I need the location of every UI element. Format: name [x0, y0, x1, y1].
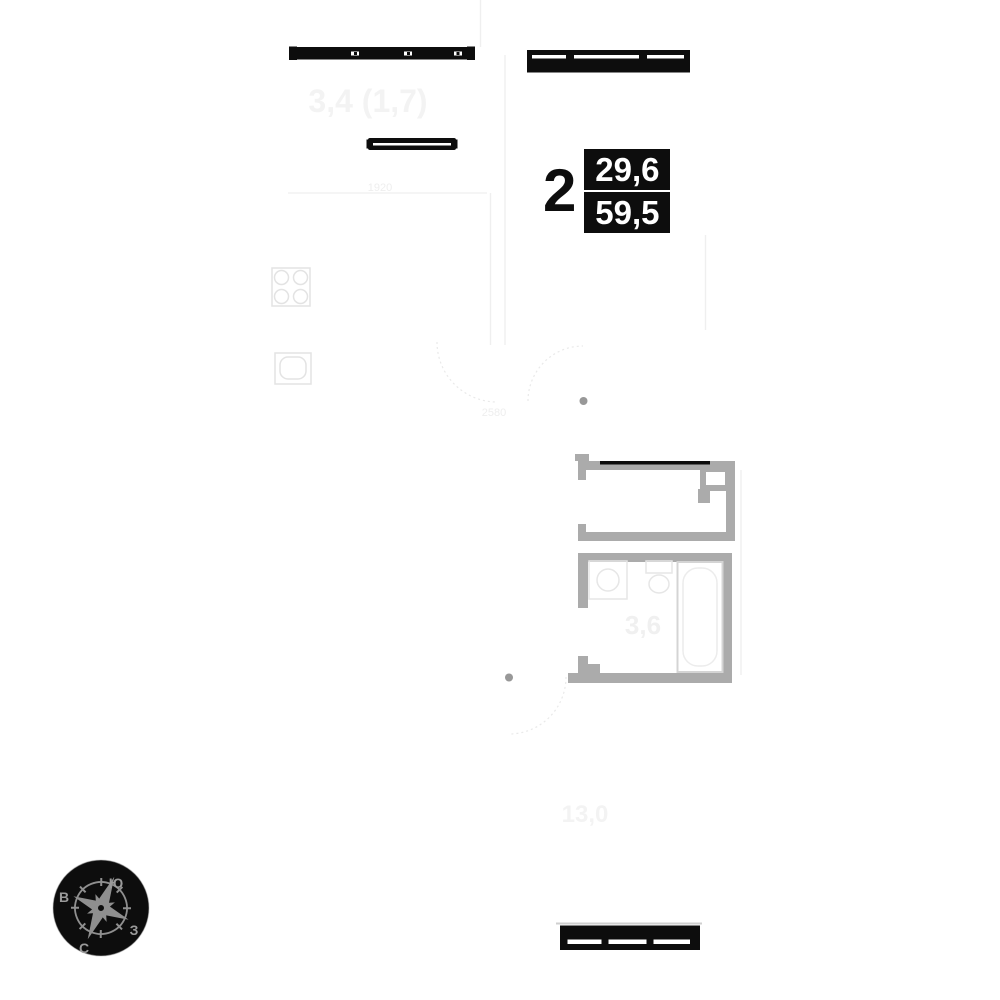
rooms-count: 2 — [543, 164, 575, 218]
door-swing-arc — [528, 346, 583, 401]
stove-icon — [272, 268, 310, 306]
window-mullion — [527, 54, 532, 60]
window-mullion — [647, 938, 654, 947]
hall-dimension-label: 2580 — [482, 407, 506, 419]
window-mullion — [602, 938, 609, 947]
kitchen-dimension-label: 1920 — [368, 182, 392, 194]
door-hinge-dot — [580, 397, 588, 405]
compass-south-label: Ю — [109, 875, 123, 891]
kitchen-fixtures — [272, 268, 311, 384]
living-area-badge: 29,6 — [584, 149, 670, 190]
door-swing-arc — [509, 677, 566, 734]
door-swing-arc — [437, 342, 497, 402]
window-living-room — [556, 923, 702, 951]
window-mullion — [566, 54, 574, 60]
compass-rose-icon: Ю В З С — [53, 860, 149, 956]
compass-north-label: С — [79, 940, 89, 956]
window-bedroom — [527, 50, 690, 73]
area-badges: 29,6 59,5 — [584, 149, 670, 233]
living-room-area-label: 13,0 — [562, 801, 609, 828]
bathroom-bottom-wall — [568, 673, 732, 683]
wc-lintel-line — [600, 461, 710, 465]
floor-plan-canvas: 3,4 (1,7) 3,6 13,0 1920 2580 — [0, 0, 1000, 1000]
floor-plan-drawing: 3,4 (1,7) 3,6 13,0 1920 2580 — [0, 0, 1000, 1000]
window-mullion — [690, 938, 697, 947]
loggia-area-label: 3,4 (1,7) — [308, 83, 427, 119]
window-mullion — [457, 52, 460, 55]
wc-walls — [575, 454, 735, 541]
washing-machine-icon — [589, 561, 627, 599]
total-area-badge: 59,5 — [584, 192, 670, 233]
compass-west-label: З — [130, 922, 139, 938]
window-mullion — [639, 54, 647, 60]
window-loggia — [289, 47, 475, 61]
window-mullion — [354, 52, 357, 55]
balcony-door-window — [367, 138, 458, 150]
window-mullion — [561, 938, 568, 947]
compass-east-label: В — [59, 889, 69, 905]
wc-bottom-wall — [578, 532, 735, 541]
bathroom-door-jamb — [578, 664, 600, 673]
wc-duct-notch — [698, 489, 710, 503]
sink-icon — [275, 353, 311, 384]
window-mullion — [684, 54, 690, 60]
apartment-label: 2 29,6 59,5 — [543, 149, 670, 233]
door-hinge-dot — [505, 674, 513, 682]
bathroom-left-wall-stub-top — [578, 553, 588, 608]
toilet-icon — [646, 561, 672, 593]
wc-duct-shaft-opening — [706, 472, 725, 485]
bathroom-area-label: 3,6 — [625, 610, 661, 640]
window-mullion — [407, 52, 410, 55]
